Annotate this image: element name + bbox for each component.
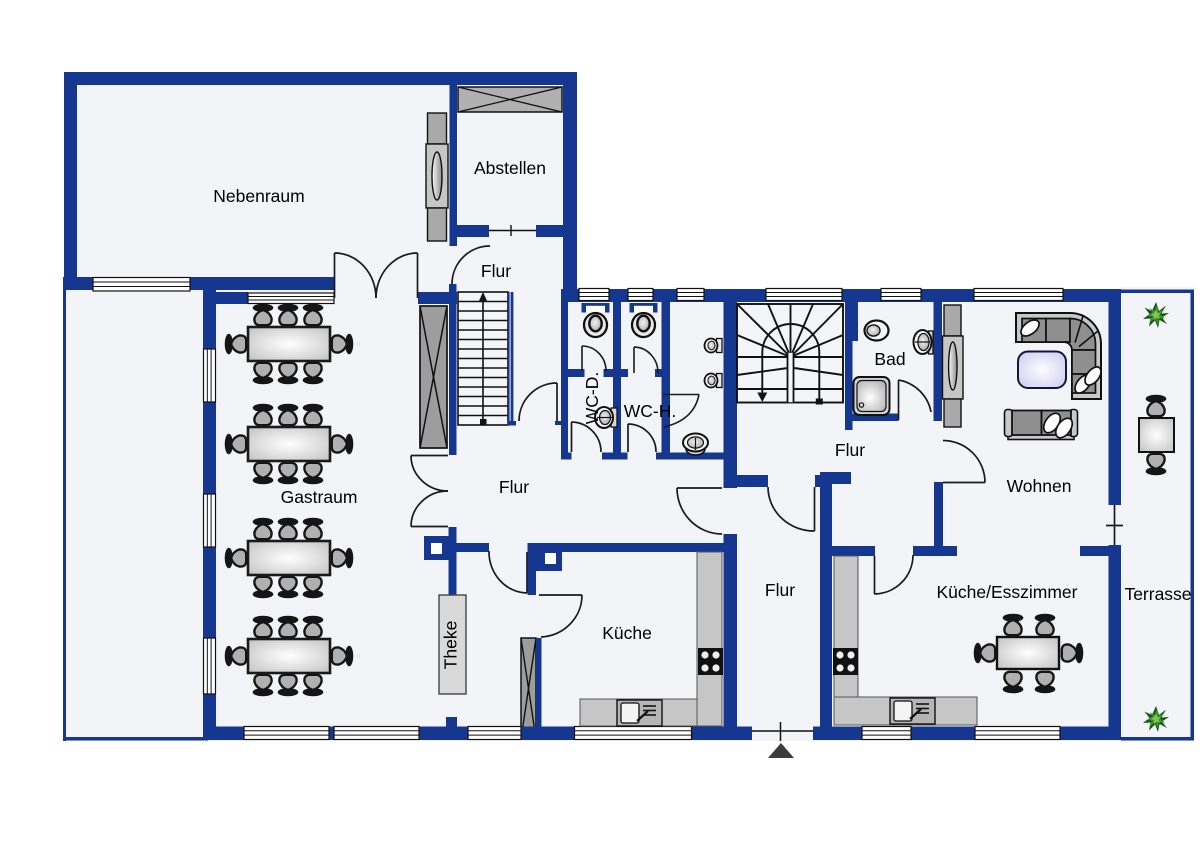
svg-text:Flur: Flur xyxy=(835,440,865,460)
svg-text:WC-H.: WC-H. xyxy=(624,401,676,421)
svg-text:Nebenraum: Nebenraum xyxy=(213,186,304,206)
svg-text:Küche: Küche xyxy=(602,623,652,643)
svg-text:Theke: Theke xyxy=(441,621,461,670)
svg-text:Terrasse: Terrasse xyxy=(1124,584,1191,604)
svg-text:WC-D.: WC-D. xyxy=(582,372,602,424)
svg-text:Flur: Flur xyxy=(499,477,529,497)
svg-text:Wohnen: Wohnen xyxy=(1007,476,1072,496)
svg-text:Gastraum: Gastraum xyxy=(281,487,358,507)
svg-text:Küche/Esszimmer: Küche/Esszimmer xyxy=(936,582,1077,602)
svg-text:Abstellen: Abstellen xyxy=(474,158,546,178)
svg-text:Flur: Flur xyxy=(481,261,511,281)
svg-text:Flur: Flur xyxy=(765,580,795,600)
svg-text:Bad: Bad xyxy=(874,349,905,369)
